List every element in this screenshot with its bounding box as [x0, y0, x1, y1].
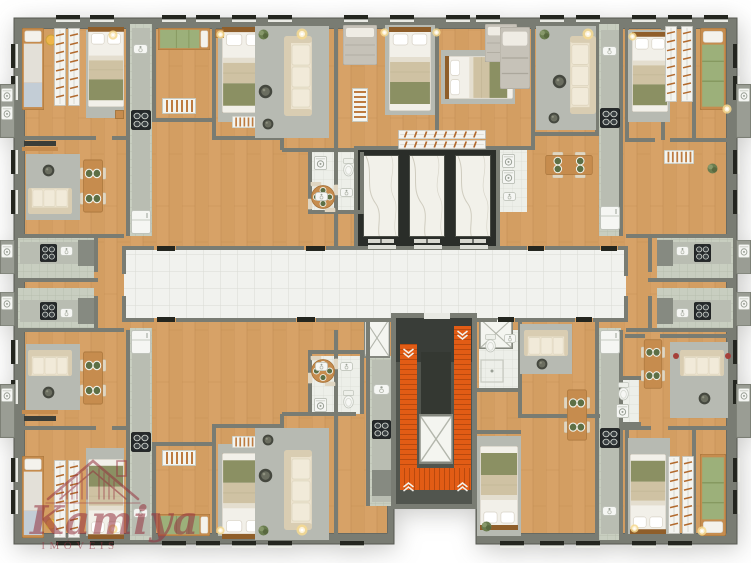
slat-rack: [664, 150, 693, 163]
single-bed-green: [158, 28, 210, 50]
slat-rack: [353, 89, 368, 122]
plant: [481, 521, 491, 531]
wardrobe: [399, 130, 486, 138]
fridge: [601, 207, 620, 230]
cabinet: [78, 298, 94, 324]
stove: [694, 302, 710, 319]
wardrobe: [55, 28, 66, 105]
elevator-bank: [354, 146, 500, 250]
sofa: [524, 330, 568, 356]
stair-landing-shaft: [420, 415, 452, 463]
decor-plate: [725, 353, 731, 359]
slat-rack: [163, 99, 196, 114]
pouf: [549, 113, 560, 124]
tv-board: [22, 147, 58, 151]
single-bed: [22, 28, 44, 110]
lamp: [628, 32, 636, 40]
ac-unit: [1, 244, 12, 257]
tv: [24, 416, 56, 421]
wardrobe: [683, 456, 694, 533]
floor-lamp: [583, 29, 594, 40]
lamp: [630, 524, 638, 532]
kitchen-sink: [134, 45, 148, 54]
lamp: [722, 104, 731, 113]
sofa: [28, 188, 72, 214]
pouf: [263, 119, 274, 130]
daybed: [343, 25, 377, 65]
kitchen-sink: [60, 309, 72, 318]
washing-machine: [502, 154, 514, 167]
lamp: [216, 30, 224, 38]
single-bed-green: [700, 454, 726, 536]
cabinet: [657, 298, 673, 324]
lamp: [216, 526, 224, 534]
pouf: [263, 435, 274, 446]
cabinet: [657, 240, 673, 266]
stove: [601, 109, 620, 128]
lamp: [697, 526, 706, 535]
floor-lamp: [297, 29, 308, 40]
double-bed: [87, 27, 125, 107]
sofa: [570, 36, 596, 114]
kitchen-sink: [676, 309, 688, 318]
ac-unit: [1, 88, 12, 101]
pouf: [699, 393, 711, 405]
kitchen-counter: [601, 30, 619, 228]
cabinet: [372, 470, 391, 496]
wardrobe: [399, 140, 486, 148]
sink: [315, 362, 327, 370]
plant: [258, 29, 268, 39]
kitchen-sink: [60, 247, 72, 256]
dining-table: [564, 390, 590, 440]
watermark-subtitle: IMÓVEIS: [41, 540, 118, 552]
wardrobe: [682, 26, 693, 101]
stove: [132, 433, 151, 452]
sofa: [284, 450, 312, 530]
floorplan-image: Kamiya IMÓVEIS: [0, 0, 751, 563]
slat-rack: [163, 451, 196, 466]
elevator-cabin: [406, 152, 448, 244]
plant: [539, 29, 549, 39]
elevator-cabin: [360, 152, 402, 244]
stove: [40, 302, 56, 319]
dining-table: [641, 340, 665, 388]
ac-unit: [738, 296, 749, 309]
sofa: [680, 350, 724, 376]
single-bed: [500, 27, 530, 89]
kitchen-sink: [603, 47, 617, 56]
kitchen-sink: [374, 385, 390, 395]
kitchen-sink: [603, 507, 617, 516]
fridge: [132, 331, 151, 354]
washing-machine: [314, 398, 326, 411]
sofa: [28, 350, 72, 376]
stove: [40, 244, 56, 261]
corridor: [124, 250, 626, 318]
stove: [694, 244, 710, 261]
ac-unit: [1, 106, 12, 119]
stove: [373, 420, 391, 438]
single-bed-green: [700, 28, 726, 110]
coffee-table: [259, 85, 273, 99]
floor-lamp: [297, 525, 308, 536]
dining-table: [80, 352, 106, 404]
double-bed: [388, 27, 432, 111]
lamp: [432, 28, 440, 36]
sink: [340, 188, 352, 196]
fridge: [132, 211, 151, 234]
coffee-table: [553, 75, 567, 89]
fridge: [601, 331, 620, 354]
stove: [132, 111, 151, 130]
ac-unit: [1, 296, 12, 309]
cabinet: [78, 240, 94, 266]
tv: [24, 141, 56, 146]
toilet: [485, 335, 495, 352]
washing-machine: [502, 170, 514, 183]
ac-unit: [738, 244, 749, 257]
sink: [504, 334, 515, 342]
coffee-table: [43, 387, 55, 399]
nightstand: [115, 110, 123, 118]
wardrobe: [669, 456, 680, 533]
toilet: [618, 383, 628, 400]
sink: [315, 192, 327, 200]
ac-unit: [1, 388, 12, 401]
toilet: [343, 159, 353, 176]
sink: [503, 192, 515, 200]
dining-table: [80, 160, 106, 212]
wardrobe: [69, 28, 80, 105]
toilet: [343, 391, 353, 408]
washing-machine: [314, 156, 326, 169]
stove: [601, 429, 620, 448]
dining-table: [546, 152, 593, 178]
sofa: [284, 36, 312, 116]
round-dining-table: [307, 355, 339, 387]
coffee-table: [259, 469, 273, 483]
building: [0, 15, 750, 548]
lamp: [380, 28, 388, 36]
lamp: [108, 30, 117, 39]
stairwell: [391, 313, 477, 509]
coffee-table: [43, 165, 55, 177]
decor-plate: [673, 353, 679, 359]
watermark-brand: Kamiya: [29, 498, 199, 544]
plant: [707, 163, 717, 173]
double-bed: [629, 454, 667, 534]
vent-shaft: [480, 319, 512, 348]
wardrobe: [666, 26, 677, 101]
coffee-table: [537, 359, 548, 370]
double-bed: [631, 32, 669, 112]
ac-unit: [738, 388, 749, 401]
washing-machine: [616, 404, 628, 417]
ac-unit: [738, 88, 749, 101]
sink: [340, 362, 352, 370]
plant: [258, 525, 268, 535]
double-bed: [479, 446, 519, 530]
kitchen-sink: [676, 247, 688, 256]
tv-board: [22, 410, 58, 414]
elevator-cabin: [452, 152, 494, 244]
